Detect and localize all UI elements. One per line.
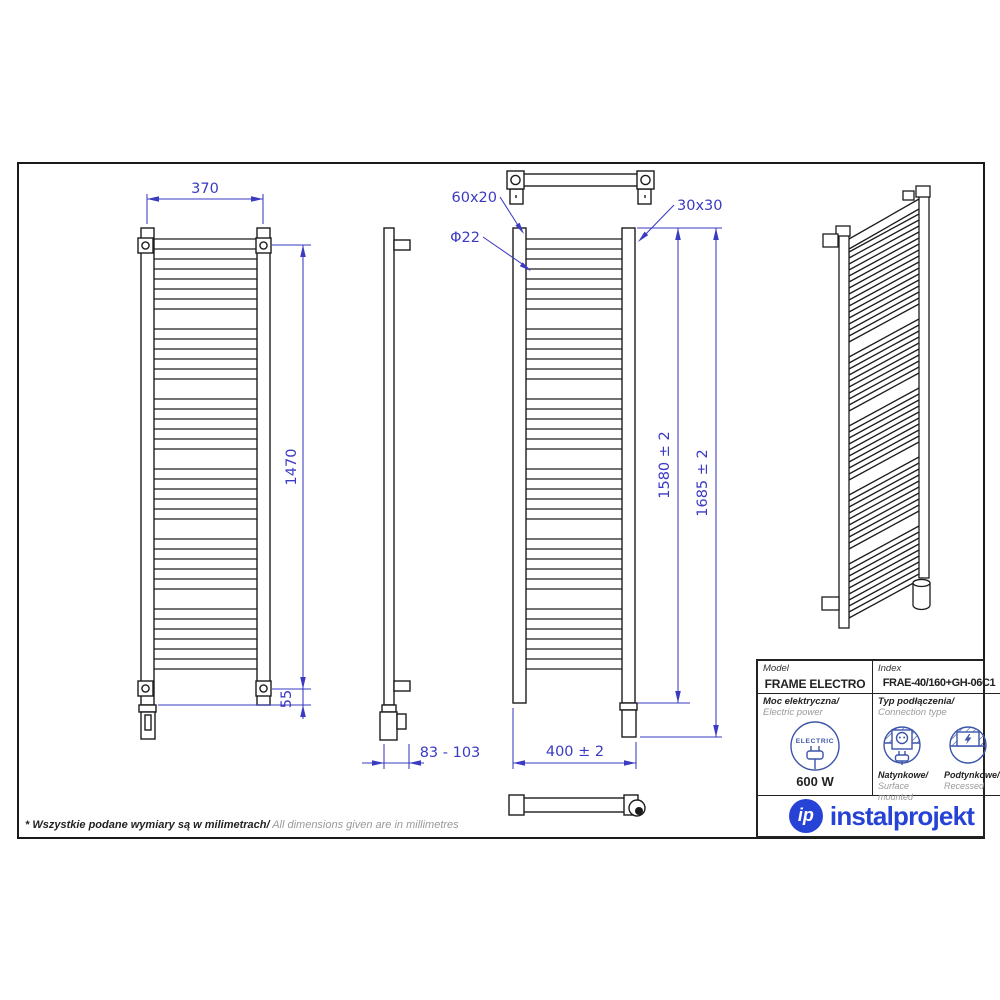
brand-row: ip instalprojekt <box>758 796 1000 836</box>
recessed-option: Podtynkowe/ Recessed <box>944 723 1000 804</box>
electric-heater-icon: ELECTRIC <box>788 719 842 773</box>
front-view-rungs <box>154 239 257 669</box>
instalprojekt-wordmark: instalprojekt <box>830 801 974 832</box>
top-view <box>507 171 654 204</box>
connection-label-pl: Typ podłączenia/ <box>878 696 954 707</box>
dim-1580-label: 1580 ± 2 <box>657 431 673 499</box>
recessed-label-pl: Podtynkowe/ <box>944 770 1000 780</box>
dim-total-height: 1685 ± 2 <box>640 228 722 737</box>
perspective-rungs <box>849 214 919 618</box>
technical-drawing-sheet: 370 1470 55 <box>0 0 1000 1000</box>
footnote-en: All dimensions given are in millimetres <box>270 819 459 831</box>
model-label: Model <box>763 663 867 674</box>
power-label-en: Electric power <box>763 707 823 718</box>
electric-badge-text: ELECTRIC <box>796 738 835 745</box>
front-view-2 <box>513 228 637 737</box>
model-cell: Model FRAME ELECTRO <box>758 661 873 694</box>
radiator-views-drawing: 370 1470 55 <box>0 0 1000 1000</box>
front-view-2-rungs <box>526 239 622 669</box>
callout-30x30-label: 30x30 <box>677 198 722 214</box>
dim-overall-width: 400 ± 2 <box>513 708 636 769</box>
power-value: 600 W <box>796 774 834 789</box>
footnote-pl: * Wszystkie podane wymiary są w milimetr… <box>25 819 270 831</box>
index-value: FRAE-40/160+GH-06C1 <box>878 677 1000 689</box>
surface-mounted-icon <box>880 723 924 767</box>
surface-label-pl: Natynkowe/ <box>878 770 928 780</box>
power-label-pl: Moc elektryczna/ <box>763 696 839 707</box>
index-label: Index <box>878 663 1000 674</box>
connection-label-en: Connection type <box>878 707 947 718</box>
callout-60x20-label: 60x20 <box>452 190 497 206</box>
recessed-icon <box>946 723 990 767</box>
recessed-label-en: Recessed <box>944 781 984 791</box>
dim-mount-height: 1470 55 <box>158 245 311 719</box>
dim-depth: 83 - 103 <box>362 744 480 769</box>
index-cell: Index FRAE-40/160+GH-06C1 <box>873 661 1000 694</box>
dim-400-label: 400 ± 2 <box>546 744 604 760</box>
dim-width-370: 370 <box>147 181 263 224</box>
surface-mounted-option: Natynkowe/ Surface mounted <box>878 723 934 804</box>
dim-depth-label: 83 - 103 <box>420 745 481 761</box>
connection-type-cell: Typ podłączenia/ Connection type <box>873 694 1000 796</box>
dim-55-label: 55 <box>279 690 295 708</box>
dimensions-footnote: * Wszystkie podane wymiary są w milimetr… <box>25 819 459 831</box>
front-view <box>138 228 271 739</box>
perspective-view <box>822 186 930 628</box>
callout-diameter-label: Φ22 <box>450 230 480 246</box>
dim-1685-label: 1685 ± 2 <box>695 449 711 517</box>
bottom-view <box>509 795 645 816</box>
spec-table: Model FRAME ELECTRO Index FRAE-40/160+GH… <box>756 659 985 838</box>
side-view <box>380 228 410 740</box>
instalprojekt-logo-icon: ip <box>789 799 823 833</box>
dim-1470-label: 1470 <box>284 449 300 486</box>
model-value: FRAME ELECTRO <box>763 677 867 691</box>
dim-width-label: 370 <box>191 181 219 197</box>
electric-power-cell: Moc elektryczna/ Electric power ELECTRIC… <box>758 694 873 796</box>
